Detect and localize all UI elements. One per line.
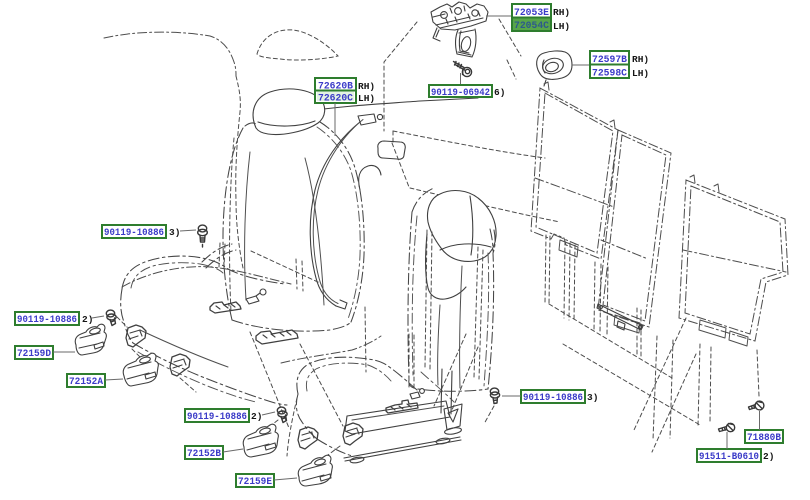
svg-text:RH): RH) <box>632 54 649 65</box>
svg-text:RH): RH) <box>553 7 570 18</box>
svg-text:90119-10886: 90119-10886 <box>187 412 247 423</box>
svg-text:3): 3) <box>169 227 180 238</box>
svg-text:72620B: 72620B <box>318 82 353 93</box>
svg-text:2): 2) <box>763 451 774 462</box>
svg-text:72159E: 72159E <box>238 477 272 488</box>
svg-text:2): 2) <box>82 314 93 325</box>
svg-text:90119-10886: 90119-10886 <box>17 315 77 326</box>
svg-text:6): 6) <box>494 87 505 98</box>
svg-text:3): 3) <box>587 392 598 403</box>
svg-text:LH): LH) <box>553 21 570 32</box>
svg-text:72159D: 72159D <box>17 349 51 360</box>
svg-text:90119-10886: 90119-10886 <box>523 393 583 404</box>
svg-text:72053E: 72053E <box>514 8 549 19</box>
svg-text:91511-B0610: 91511-B0610 <box>699 452 759 463</box>
svg-text:RH): RH) <box>358 81 375 92</box>
svg-text:72054C: 72054C <box>514 21 549 32</box>
svg-text:72597B: 72597B <box>592 55 627 66</box>
svg-text:71880B: 71880B <box>747 433 781 444</box>
svg-text:LH): LH) <box>632 68 649 79</box>
svg-text:90119-10886: 90119-10886 <box>104 228 164 239</box>
svg-text:90119-06942: 90119-06942 <box>431 88 490 99</box>
svg-text:72152A: 72152A <box>69 377 103 388</box>
svg-text:2): 2) <box>251 411 262 422</box>
svg-text:LH): LH) <box>358 93 375 104</box>
svg-text:72598C: 72598C <box>592 69 627 80</box>
svg-text:72152B: 72152B <box>187 449 221 460</box>
svg-text:72620C: 72620C <box>318 94 353 105</box>
